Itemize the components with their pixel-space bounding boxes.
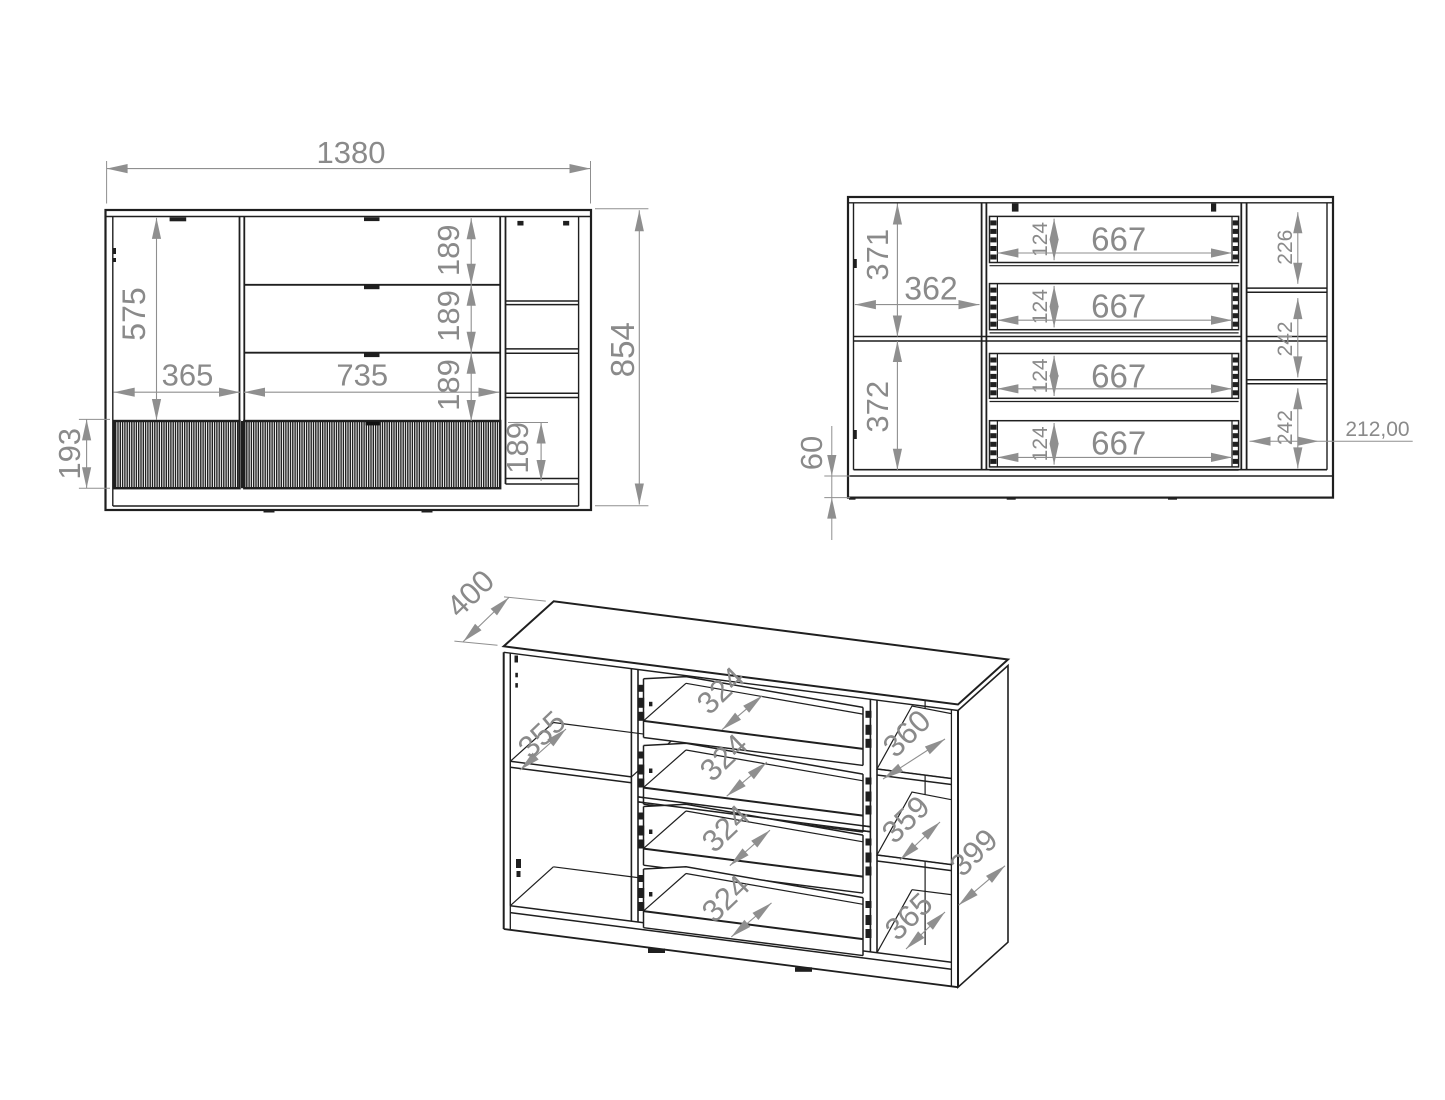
svg-text:124: 124 (1029, 222, 1052, 257)
svg-text:60: 60 (794, 436, 829, 470)
svg-text:189: 189 (431, 224, 466, 276)
svg-text:372: 372 (860, 381, 895, 433)
svg-text:667: 667 (1091, 288, 1146, 325)
svg-text:242: 242 (1274, 410, 1297, 445)
svg-text:667: 667 (1091, 358, 1146, 395)
svg-text:212,00: 212,00 (1345, 418, 1409, 441)
svg-text:124: 124 (1029, 289, 1052, 324)
svg-text:124: 124 (1029, 426, 1052, 461)
svg-text:575: 575 (116, 287, 152, 340)
svg-text:735: 735 (336, 358, 388, 393)
svg-text:189: 189 (431, 359, 466, 411)
svg-text:124: 124 (1029, 358, 1052, 393)
svg-text:667: 667 (1091, 425, 1146, 462)
svg-text:854: 854 (604, 322, 641, 377)
svg-text:193: 193 (52, 428, 87, 480)
svg-text:242: 242 (1274, 321, 1297, 356)
svg-text:371: 371 (860, 229, 895, 281)
svg-text:1380: 1380 (317, 135, 386, 170)
svg-text:362: 362 (904, 271, 957, 307)
svg-text:226: 226 (1274, 230, 1297, 265)
svg-text:189: 189 (431, 290, 466, 342)
svg-text:667: 667 (1091, 220, 1146, 257)
svg-text:365: 365 (162, 358, 214, 393)
svg-text:189: 189 (500, 422, 535, 474)
